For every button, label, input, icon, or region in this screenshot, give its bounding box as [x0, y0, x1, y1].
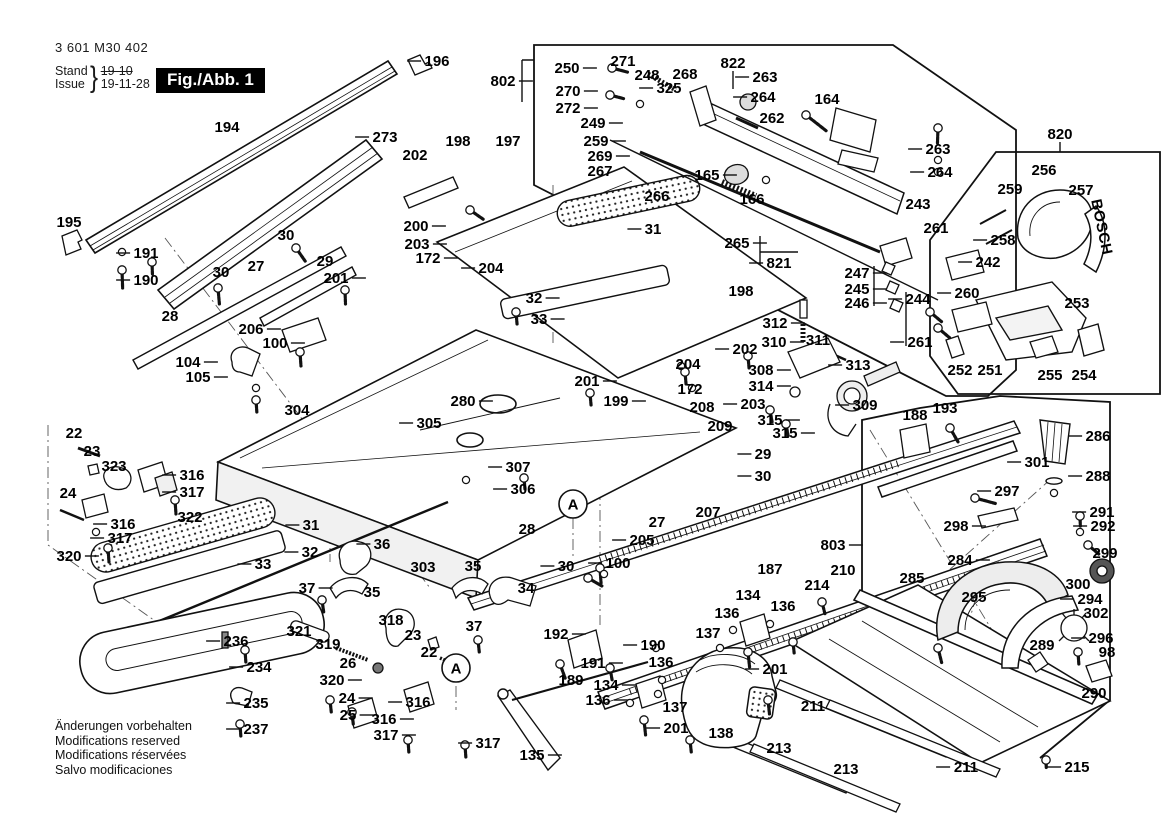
part-label-136: 136	[648, 654, 673, 671]
part-label-204: 204	[478, 260, 504, 277]
part-label-188: 188	[902, 407, 927, 424]
part-label-311: 311	[806, 332, 830, 349]
part-label-37: 37	[299, 580, 316, 597]
part-label-200: 200	[403, 218, 428, 235]
part-label-820: 820	[1047, 126, 1072, 143]
part-label-28: 28	[519, 521, 536, 538]
part-label-320: 320	[319, 672, 344, 689]
part-label-201: 201	[574, 373, 599, 390]
part-label-24: 24	[60, 485, 77, 502]
part-label-36: 36	[374, 536, 391, 553]
part-label-204: 204	[675, 356, 701, 373]
part-label-26: 26	[340, 655, 357, 672]
part-label-306: 306	[510, 481, 535, 498]
part-label-35: 35	[465, 558, 482, 575]
part-label-273: 273	[372, 129, 397, 146]
part-label-315: 315	[772, 425, 797, 442]
part-label-317: 317	[179, 484, 204, 501]
part-label-290: 290	[1081, 685, 1106, 702]
part-label-802: 802	[490, 73, 515, 90]
part-label-213: 213	[833, 761, 858, 778]
part-label-272: 272	[555, 100, 580, 117]
exploded-parts-drawing: 1968022502712482688222632642702723252492…	[0, 0, 1169, 826]
title-block: 3 601 M30 402 Stand Issue } 19-10 19-11-…	[55, 40, 150, 95]
part-label-237: 237	[243, 721, 268, 738]
part-label-28: 28	[162, 308, 179, 325]
issue-date: 19-11-28	[101, 78, 150, 91]
part-label-29: 29	[755, 446, 772, 463]
part-label-23: 23	[84, 443, 101, 460]
brace-glyph: }	[90, 61, 98, 95]
part-label-284: 284	[947, 552, 973, 569]
part-label-31: 31	[645, 221, 662, 238]
part-label-270: 270	[555, 83, 580, 100]
part-label-267: 267	[587, 163, 612, 180]
part-label-165: 165	[694, 167, 719, 184]
part-label-254: 254	[1071, 367, 1097, 384]
part-label-30: 30	[558, 558, 575, 575]
part-label-821: 821	[766, 255, 791, 272]
part-label-201: 201	[323, 270, 348, 287]
part-label-197: 197	[495, 133, 520, 150]
part-label-314: 314	[748, 378, 774, 395]
part-label-310: 310	[761, 334, 786, 351]
part-label-198: 198	[728, 283, 753, 300]
part-label-236: 236	[223, 633, 248, 650]
part-label-256: 256	[1031, 162, 1056, 179]
part-label-247: 247	[844, 265, 869, 282]
part-label-137: 137	[695, 625, 720, 642]
part-label-302: 302	[1083, 605, 1108, 622]
issue-label: Issue	[55, 78, 88, 91]
part-label-136: 136	[714, 605, 739, 622]
part-label-285: 285	[899, 570, 924, 587]
part-label-215: 215	[1064, 759, 1089, 776]
part-label-105: 105	[185, 369, 210, 386]
part-label-288: 288	[1085, 468, 1110, 485]
part-label-319: 319	[315, 636, 340, 653]
part-label-308: 308	[748, 362, 773, 379]
part-label-289: 289	[1029, 637, 1054, 654]
part-label-30: 30	[213, 264, 230, 281]
notice-line-en: Modifications reserved	[55, 734, 192, 749]
part-label-100: 100	[605, 555, 630, 572]
part-label-135: 135	[519, 747, 544, 764]
part-label-234: 234	[246, 659, 272, 676]
part-label-822: 822	[720, 55, 745, 72]
document-part-number: 3 601 M30 402	[55, 40, 150, 55]
part-label-255: 255	[1037, 367, 1062, 384]
part-label-190: 190	[640, 637, 665, 654]
part-label-211: 211	[954, 759, 978, 776]
part-label-193: 193	[932, 400, 957, 417]
part-label-309: 309	[852, 397, 877, 414]
part-label-27: 27	[649, 514, 666, 531]
part-label-37: 37	[466, 618, 483, 635]
part-label-166: 166	[739, 191, 764, 208]
part-label-195: 195	[56, 214, 81, 231]
part-label-211: 211	[801, 698, 825, 715]
part-label-191: 191	[580, 655, 605, 672]
part-label-250: 250	[554, 60, 579, 77]
part-label-33: 33	[531, 311, 548, 328]
part-label-318: 318	[378, 612, 403, 629]
part-label-253: 253	[1064, 295, 1089, 312]
part-label-299: 299	[1092, 545, 1117, 562]
part-label-242: 242	[975, 254, 1000, 271]
part-label-202: 202	[732, 341, 757, 358]
part-label-262: 262	[759, 110, 784, 127]
part-label-243: 243	[905, 196, 930, 213]
figure-label: Fig./Abb. 1	[156, 68, 265, 93]
part-label-206: 206	[238, 321, 263, 338]
part-label-317: 317	[373, 727, 398, 744]
part-label-201: 201	[663, 720, 688, 737]
part-label-258: 258	[990, 232, 1015, 249]
part-label-264: 264	[750, 89, 776, 106]
part-label-259: 259	[997, 181, 1022, 198]
part-label-320: 320	[56, 548, 81, 565]
part-label-187: 187	[757, 561, 782, 578]
part-label-30: 30	[755, 468, 772, 485]
part-label-201: 201	[762, 661, 787, 678]
part-label-325: 325	[656, 80, 681, 97]
part-label-34: 34	[518, 580, 535, 597]
part-label-30: 30	[278, 227, 295, 244]
parts-diagram-page: 1968022502712482688222632642702723252492…	[0, 0, 1169, 826]
part-label-263: 263	[752, 69, 777, 86]
knob-286	[1040, 420, 1070, 484]
part-label-136: 136	[585, 692, 610, 709]
part-label-292: 292	[1090, 518, 1115, 535]
part-label-260: 260	[954, 285, 979, 302]
part-label-172: 172	[415, 250, 440, 267]
modification-notice: Änderungen vorbehalten Modifications res…	[55, 719, 192, 777]
part-label-295: 295	[961, 589, 986, 606]
part-label-209: 209	[707, 418, 732, 435]
part-label-263: 263	[925, 141, 950, 158]
part-label-316: 316	[371, 711, 396, 728]
part-label-210: 210	[830, 562, 855, 579]
part-label-137: 137	[662, 699, 687, 716]
part-label-286: 286	[1085, 428, 1110, 445]
part-label-136: 136	[770, 598, 795, 615]
notice-line-de: Änderungen vorbehalten	[55, 719, 192, 734]
part-label-251: 251	[977, 362, 1002, 379]
part-label-192: 192	[543, 626, 568, 643]
part-label-134: 134	[735, 587, 761, 604]
part-label-301: 301	[1024, 454, 1049, 471]
part-label-98: 98	[1099, 644, 1116, 661]
notice-line-es: Salvo modificaciones	[55, 763, 192, 778]
detail-marker-letter: A	[451, 661, 462, 678]
part-label-298: 298	[943, 518, 968, 535]
part-label-803: 803	[820, 537, 845, 554]
part-label-317: 317	[475, 735, 500, 752]
part-label-214: 214	[804, 577, 830, 594]
part-label-202: 202	[402, 147, 427, 164]
part-label-280: 280	[450, 393, 475, 410]
part-label-33: 33	[255, 556, 272, 573]
part-label-23: 23	[405, 627, 422, 644]
part-label-207: 207	[695, 504, 720, 521]
part-label-271: 271	[610, 53, 635, 70]
part-label-24: 24	[339, 690, 356, 707]
part-label-196: 196	[424, 53, 449, 70]
part-label-303: 303	[410, 559, 435, 576]
part-label-265: 265	[724, 235, 749, 252]
part-label-35: 35	[364, 584, 381, 601]
part-label-246: 246	[844, 295, 869, 312]
part-label-261: 261	[923, 220, 948, 237]
part-label-316: 316	[179, 467, 204, 484]
part-label-252: 252	[947, 362, 972, 379]
part-label-304: 304	[284, 402, 310, 419]
part-label-317: 317	[107, 530, 132, 547]
part-label-194: 194	[214, 119, 240, 136]
part-label-203: 203	[740, 396, 765, 413]
part-label-249: 249	[580, 115, 605, 132]
part-label-244: 244	[905, 291, 931, 308]
part-label-323: 323	[101, 458, 126, 475]
part-label-321: 321	[286, 623, 311, 640]
part-label-297: 297	[994, 483, 1019, 500]
part-label-172: 172	[677, 381, 702, 398]
part-label-261: 261	[907, 334, 932, 351]
part-label-199: 199	[603, 393, 628, 410]
part-label-22: 22	[421, 644, 438, 661]
part-label-100: 100	[262, 335, 287, 352]
part-label-205: 205	[629, 532, 654, 549]
part-label-27: 27	[248, 258, 265, 275]
part-label-31: 31	[303, 517, 320, 534]
part-label-32: 32	[302, 544, 319, 561]
notice-line-fr: Modifications réservées	[55, 748, 192, 763]
part-label-190: 190	[133, 272, 158, 289]
part-label-29: 29	[317, 253, 334, 270]
part-label-191: 191	[133, 245, 158, 262]
part-label-164: 164	[814, 91, 840, 108]
part-label-264: 264	[927, 164, 953, 181]
part-label-316: 316	[405, 694, 430, 711]
part-label-189: 189	[558, 672, 583, 689]
part-label-213: 213	[766, 740, 791, 757]
part-label-138: 138	[708, 725, 733, 742]
part-label-22: 22	[66, 425, 83, 442]
part-label-312: 312	[762, 315, 787, 332]
part-label-25: 25	[340, 707, 357, 724]
part-label-32: 32	[526, 290, 543, 307]
part-label-257: 257	[1068, 182, 1093, 199]
part-label-266: 266	[644, 188, 669, 205]
part-label-305: 305	[416, 415, 441, 432]
part-label-307: 307	[505, 459, 530, 476]
part-label-235: 235	[243, 695, 268, 712]
part-label-198: 198	[445, 133, 470, 150]
part-label-322: 322	[177, 509, 202, 526]
detail-marker-letter: A	[568, 497, 579, 514]
part-label-208: 208	[689, 399, 714, 416]
part-label-313: 313	[845, 357, 870, 374]
